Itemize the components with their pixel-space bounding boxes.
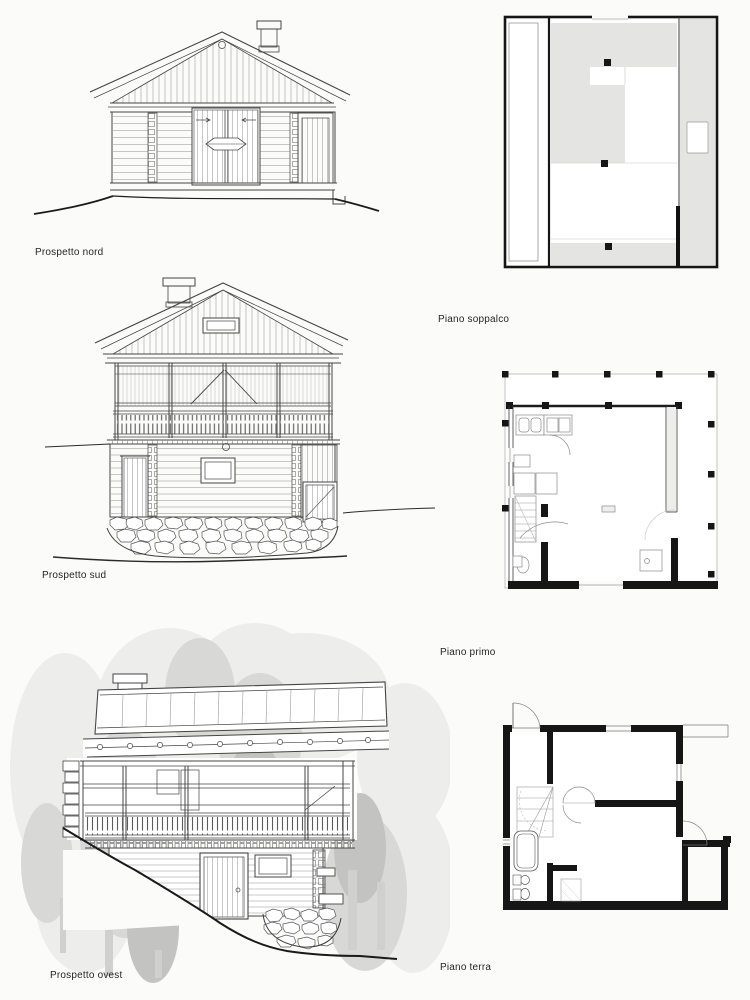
mezzanine-plan-drawing (500, 10, 720, 272)
north-elevation-drawing (30, 8, 380, 223)
north-elevation-label: Prospetto nord (35, 247, 103, 258)
book-page: Prospetto nord (0, 0, 750, 1000)
ground-floor-plan-label: Piano terra (440, 962, 491, 973)
south-elevation-label: Prospetto sud (42, 570, 106, 581)
first-floor-plan-label: Piano primo (440, 647, 496, 658)
ground-floor-plan-drawing (495, 695, 733, 927)
mezzanine-plan-label: Piano soppalco (438, 314, 509, 325)
west-elevation-drawing (5, 598, 450, 983)
first-floor-plan-drawing (495, 360, 727, 595)
south-elevation-drawing (45, 270, 440, 570)
west-elevation-label: Prospetto ovest (50, 970, 122, 981)
